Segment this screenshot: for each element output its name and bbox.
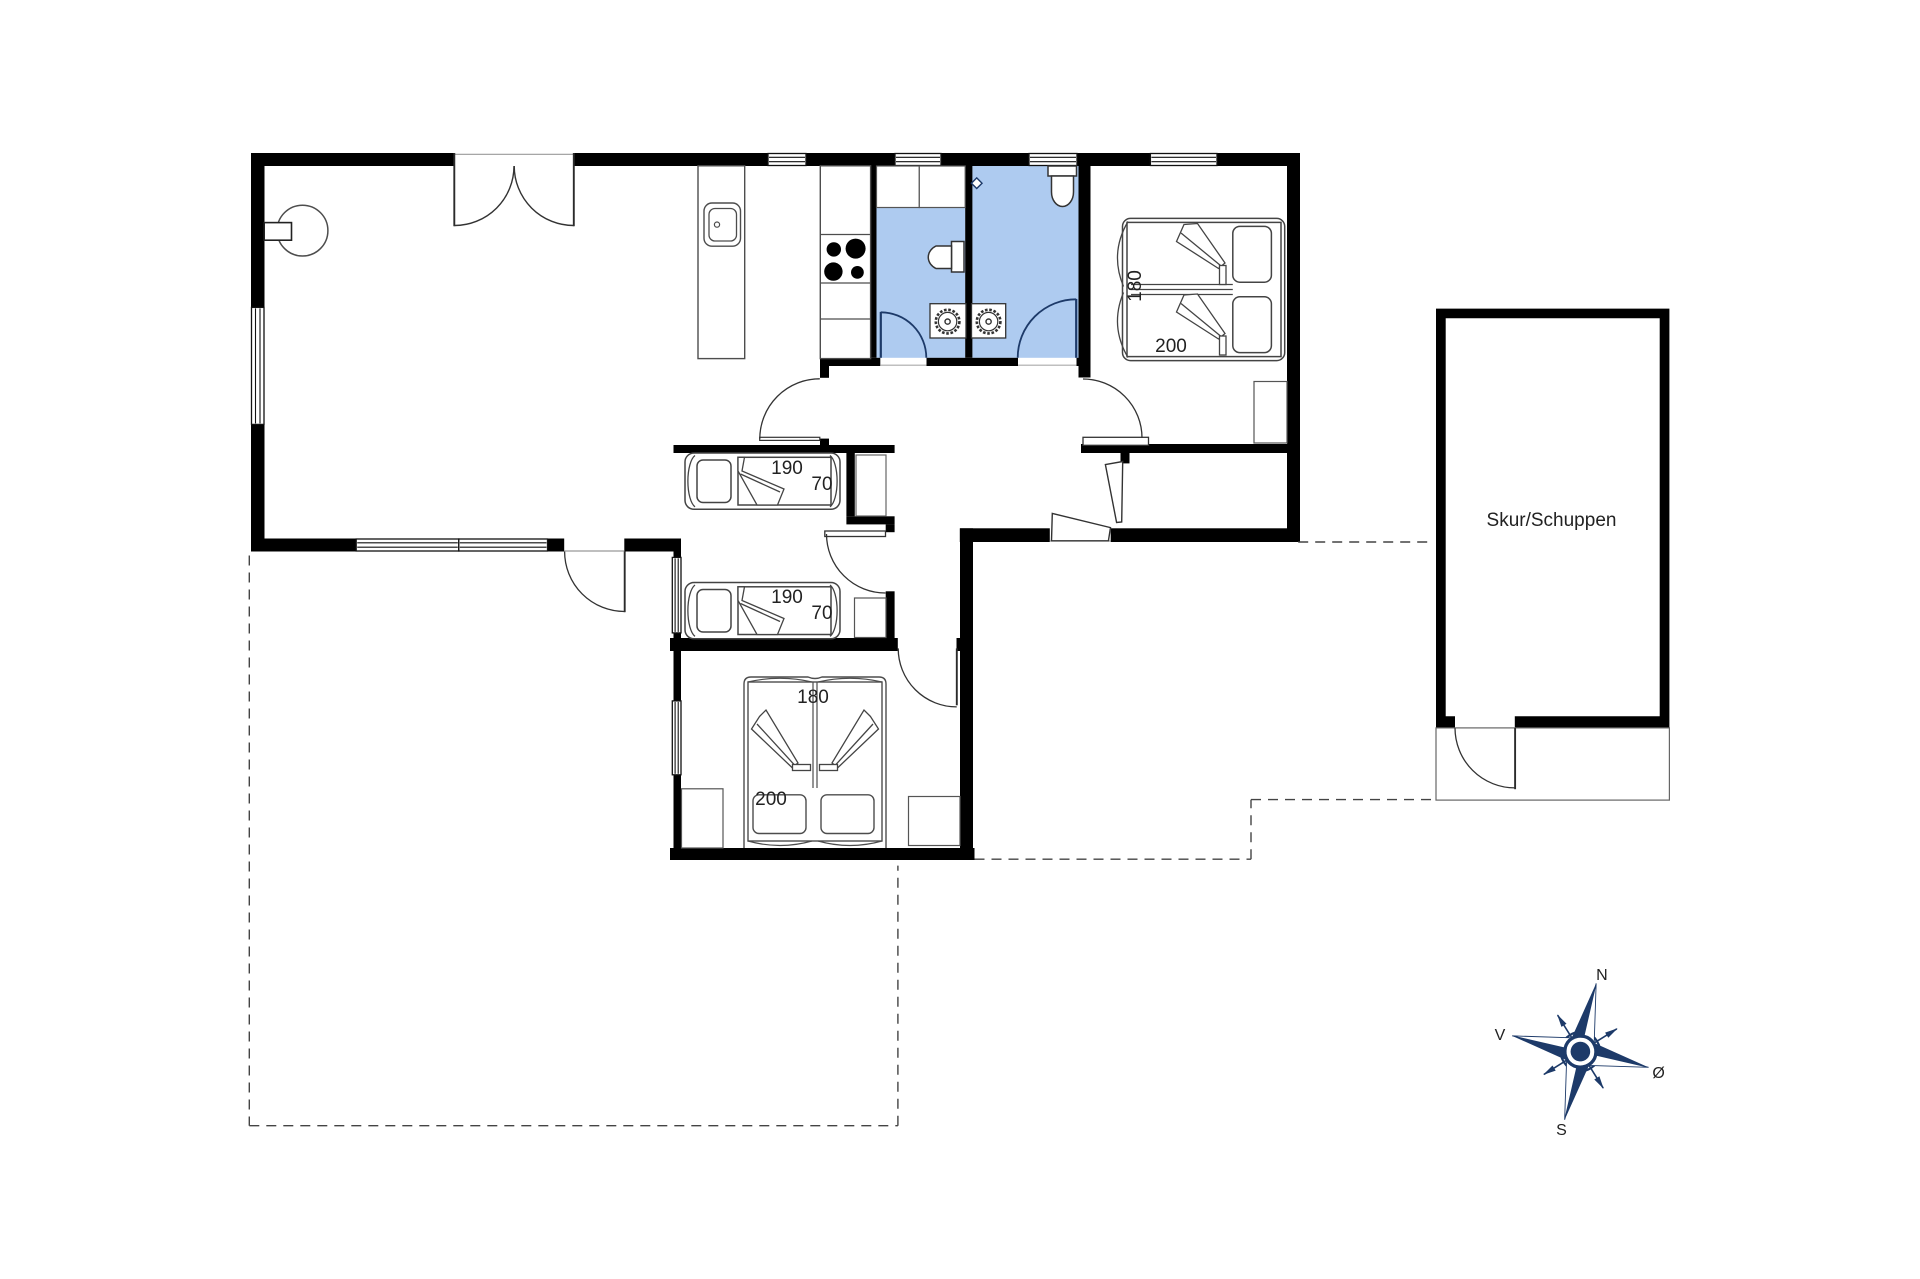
- svg-text:V: V: [1495, 1027, 1506, 1044]
- svg-text:N: N: [1596, 967, 1608, 984]
- svg-text:200: 200: [1155, 336, 1187, 357]
- svg-text:70: 70: [811, 603, 832, 624]
- svg-text:200: 200: [755, 789, 787, 810]
- svg-text:S: S: [1556, 1122, 1567, 1139]
- svg-text:190: 190: [771, 587, 803, 608]
- svg-text:Skur/Schuppen: Skur/Schuppen: [1487, 510, 1617, 531]
- svg-text:190: 190: [771, 458, 803, 479]
- svg-text:70: 70: [811, 474, 832, 495]
- svg-text:180: 180: [797, 687, 829, 708]
- svg-text:Ø: Ø: [1652, 1065, 1664, 1082]
- svg-text:180: 180: [1125, 270, 1146, 302]
